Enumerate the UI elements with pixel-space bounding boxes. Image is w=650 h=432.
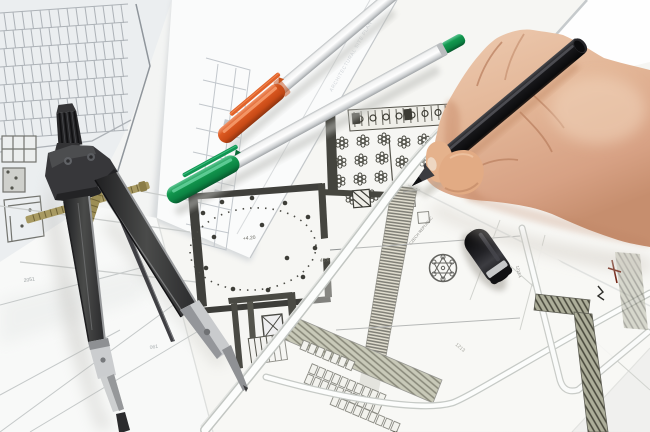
- svg-text:45.0: 45.0: [320, 257, 330, 264]
- svg-text:+4.20: +4.20: [243, 235, 256, 242]
